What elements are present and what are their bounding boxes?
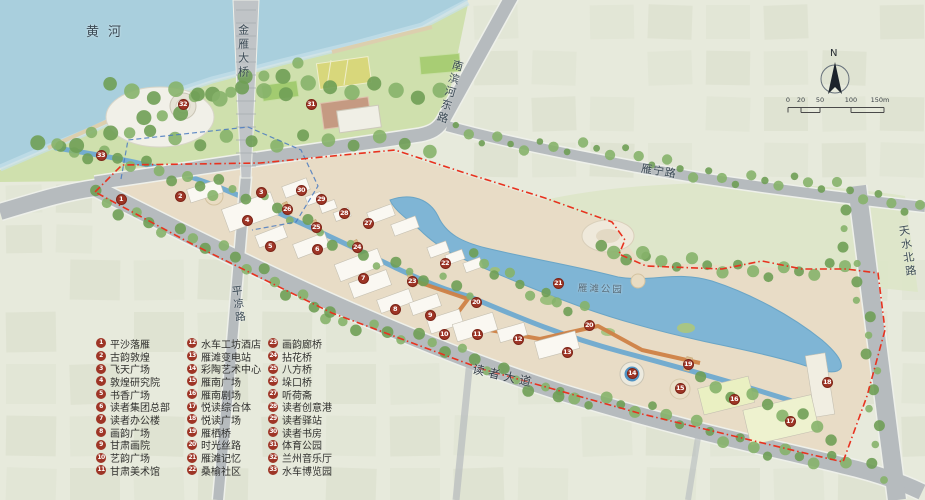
legend-item-number: 25 [268,364,278,374]
plaza-circle [670,379,690,399]
scale-tick: 0 [786,96,790,104]
plaza-circle [631,274,645,288]
caitao-art-center [620,362,644,386]
scale-tick: 20 [797,96,805,104]
legend-item-label: 水车博览园 [282,463,332,478]
legend-item-number: 3 [96,364,106,374]
legend-item-number: 24 [268,351,278,361]
legend-item-33: 33水车博览园 [268,464,359,477]
legend: 1平沙落雁2古韵敦煌3飞天广场4敦煌研究院5书香广场6读者集团总部7读者办公楼8… [96,337,359,477]
legend-item-number: 26 [268,376,278,386]
legend-item-number: 18 [187,414,197,424]
legend-item-number: 33 [268,465,278,475]
legend-item-number: 10 [96,453,106,463]
legend-item-number: 2 [96,351,106,361]
scale-tick: 150m [871,96,890,104]
legend-item-number: 16 [187,389,197,399]
legend-item-number: 17 [187,402,197,412]
legend-item-number: 29 [268,414,278,424]
legend-item-label: 桑榆社区 [201,463,241,478]
site-plan-map: 黄河金雁大桥南滨河东路雁宁路平凉路读者大道天水北路雁滩公园 1234567891… [0,0,925,500]
legend-column: 12水车工坊酒店13雁滩变电站14彩陶艺术中心15雁南广场16雁南剧场17悦读综… [187,337,268,477]
legend-item-number: 30 [268,427,278,437]
lake-island [677,323,695,333]
legend-item-number: 27 [268,389,278,399]
legend-item-number: 23 [268,338,278,348]
legend-item-number: 32 [268,453,278,463]
legend-item-number: 19 [187,427,197,437]
legend-item-number: 20 [187,440,197,450]
legend-item-number: 22 [187,465,197,475]
legend-item-number: 15 [187,376,197,386]
legend-item-number: 6 [96,402,106,412]
legend-column: 23画韵廊桥24拈花桥25八方桥26垛口桥27听荷斋28读者创意港29读者驿站3… [268,337,359,477]
legend-item-22: 22桑榆社区 [187,464,268,477]
legend-item-number: 31 [268,440,278,450]
legend-item-number: 14 [187,364,197,374]
legend-item-number: 8 [96,427,106,437]
north-label: N [830,48,837,59]
legend-column: 1平沙落雁2古韵敦煌3飞天广场4敦煌研究院5书香广场6读者集团总部7读者办公楼8… [96,337,187,477]
legend-item-number: 12 [187,338,197,348]
legend-item-number: 5 [96,389,106,399]
legend-item-11: 11甘肃美术馆 [96,464,187,477]
legend-item-number: 13 [187,351,197,361]
legend-item-number: 9 [96,440,106,450]
scale-tick: 50 [816,96,824,104]
legend-item-number: 28 [268,402,278,412]
scale-tick: 100 [845,96,857,104]
legend-item-number: 7 [96,414,106,424]
legend-item-number: 4 [96,376,106,386]
legend-item-number: 21 [187,453,197,463]
legend-item-number: 11 [96,465,106,475]
legend-item-number: 1 [96,338,106,348]
legend-item-label: 甘肃美术馆 [110,463,160,478]
